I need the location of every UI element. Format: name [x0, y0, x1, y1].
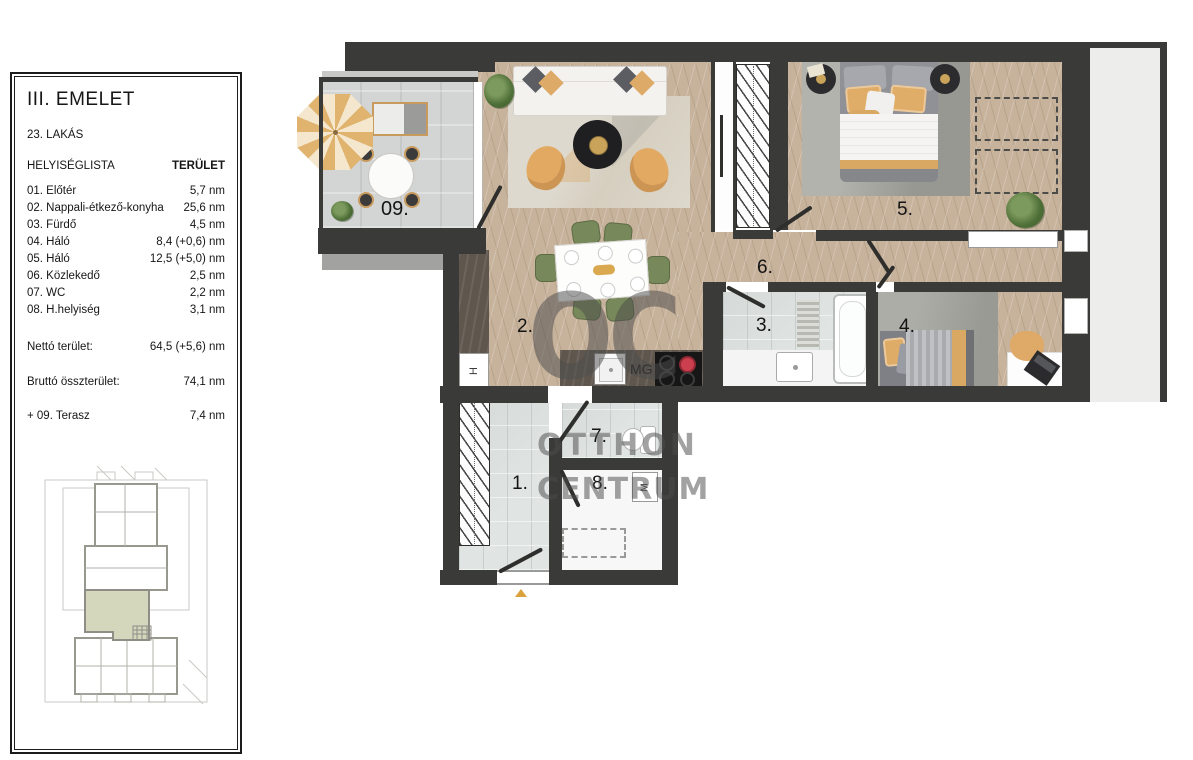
neighbor-terrace-strip — [1090, 48, 1162, 402]
room-row: 05. Háló12,5 (+5,0) nm — [27, 251, 225, 268]
plate — [564, 250, 580, 266]
bathroom-sink — [776, 352, 813, 382]
room-label: 05. Háló — [27, 251, 70, 268]
terrace-area-value: 7,4 nm — [190, 410, 225, 422]
terrace-rail-left — [319, 77, 323, 229]
window-right-2 — [1064, 298, 1088, 334]
site-plan-minimap — [27, 460, 225, 715]
wall-closet-column-left — [711, 62, 715, 232]
lounger-cushion — [404, 104, 426, 134]
watermark-line2: CENTRUM — [537, 472, 709, 507]
entrance-door-opening — [497, 570, 549, 585]
room-label: 06. Közlekedő — [27, 268, 100, 285]
info-panel-inner: III. EMELET 23. LAKÁS HELYISÉGLISTA TERÜ… — [14, 76, 238, 750]
room-area: 2,5 nm — [190, 268, 225, 285]
wall-bath-bedroom4 — [866, 282, 878, 402]
list-header-row: HELYISÉGLISTA TERÜLET — [27, 160, 225, 172]
wall-below-terrace — [318, 228, 486, 254]
room-label-5: 5. — [897, 199, 913, 221]
entry-wardrobe-centerline — [474, 402, 475, 544]
gross-area-value: 74,1 nm — [183, 376, 225, 388]
room-label: 01. Előtér — [27, 183, 76, 200]
room-area: 3,1 nm — [190, 302, 225, 319]
window-right-1 — [1064, 230, 1088, 252]
gross-area-row: Bruttó összterület: 74,1 nm — [27, 376, 225, 388]
wall-south — [678, 386, 1090, 402]
room-row: 08. H.helyiség3,1 nm — [27, 302, 225, 319]
room-label-1: 1. — [512, 473, 528, 495]
room-label-9: 09. — [381, 198, 409, 221]
neighbor-strip-top-line — [1090, 42, 1167, 48]
terrace-area-label: + 09. Terasz — [27, 410, 90, 422]
entrance-marker — [515, 589, 527, 597]
info-panel: III. EMELET 23. LAKÁS HELYISÉGLISTA TERÜ… — [10, 72, 242, 754]
room-label: 07. WC — [27, 285, 65, 302]
room-area: 5,7 nm — [190, 183, 225, 200]
fridge: H — [459, 353, 489, 389]
room-row: 02. Nappali-étkező-konyha25,6 nm — [27, 200, 225, 217]
apartment-number: 23. LAKÁS — [27, 129, 225, 141]
neighbor-strip-right-line — [1160, 42, 1167, 402]
bed4-foot — [966, 330, 974, 387]
room-label: 02. Nappali-étkező-konyha — [27, 200, 164, 217]
plate — [628, 248, 644, 264]
window-sill-bedroom5 — [968, 231, 1058, 248]
room-label: 08. H.helyiség — [27, 302, 100, 319]
room-label-6: 6. — [757, 257, 773, 279]
room-row: 01. Előtér5,7 nm — [27, 183, 225, 200]
nightstand — [806, 64, 836, 94]
bed5-foot — [840, 169, 938, 182]
bedroom5-plant — [1006, 192, 1044, 228]
room-row: 06. Közlekedő2,5 nm — [27, 268, 225, 285]
wall-shadow-band — [322, 254, 447, 270]
utility-dashed-outline — [562, 528, 626, 558]
net-area-row: Nettó terület: 64,5 (+5,6) nm — [27, 341, 225, 353]
terrace-plant — [331, 201, 353, 221]
bed4-duvet — [906, 330, 956, 387]
terrace-table — [368, 153, 414, 199]
nightstand — [930, 64, 960, 94]
room-label-4: 4. — [899, 316, 915, 338]
wall-bottom — [440, 570, 678, 585]
room-area: 8,4 (+0,6) nm — [156, 234, 225, 251]
room-label-3: 3. — [756, 315, 772, 337]
coffee-table-tray — [589, 136, 608, 155]
bed5-duvet — [840, 114, 938, 162]
terrace-rail-top — [320, 77, 478, 82]
lamp — [940, 74, 950, 84]
terrace-chair — [358, 192, 374, 208]
bed5-blanket-stripe — [840, 160, 938, 169]
coffee-table — [573, 120, 622, 169]
wardrobe-centerline — [753, 66, 754, 226]
room-list: 01. Előtér5,7 nm 02. Nappali-étkező-kony… — [27, 183, 225, 319]
wall-closet-column-right — [733, 62, 736, 232]
room-row: 07. WC2,2 nm — [27, 285, 225, 302]
room-area: 2,2 nm — [190, 285, 225, 302]
floor-title: III. EMELET — [27, 89, 225, 111]
watermark-line1: OTTHON — [537, 428, 698, 463]
sun-lounger — [372, 102, 428, 136]
room-row: 04. Háló8,4 (+0,6) nm — [27, 234, 225, 251]
bed4-blanket-stripe — [952, 330, 966, 387]
watermark-logo: OC — [528, 290, 677, 384]
net-area-value: 64,5 (+5,6) nm — [150, 341, 225, 353]
gross-area-label: Bruttó összterület: — [27, 376, 120, 388]
net-area-label: Nettó terület: — [27, 341, 93, 353]
floorplan-page: III. EMELET 23. LAKÁS HELYISÉGLISTA TERÜ… — [0, 0, 1193, 760]
terrace-sliding-door — [473, 82, 483, 228]
wall-closet-bedroom5 — [770, 62, 788, 230]
room-label: 03. Fürdő — [27, 217, 76, 234]
umbrella-pole — [333, 130, 338, 135]
terrace-area-row: + 09. Terasz 7,4 nm — [27, 410, 225, 422]
bathtub-basin — [839, 301, 866, 377]
burner-active — [679, 356, 696, 373]
room-row: 03. Fürdő4,5 nm — [27, 217, 225, 234]
site-plan-svg — [37, 460, 215, 710]
area-header: TERÜLET — [172, 160, 225, 172]
room-area: 12,5 (+5,0) nm — [150, 251, 225, 268]
wall-left — [443, 228, 459, 585]
closet-door-leaf — [720, 115, 723, 177]
wall-top-terrace — [345, 42, 495, 72]
room-label: 04. Háló — [27, 234, 70, 251]
closet-door-column — [715, 62, 733, 230]
kitchen-counter-left — [459, 250, 489, 353]
room-list-header: HELYISÉGLISTA — [27, 160, 115, 172]
plate — [597, 245, 613, 261]
bedroom5-wardrobe-dashed — [975, 97, 1058, 141]
bedroom5-wardrobe-dashed — [975, 149, 1058, 194]
wall-right — [1062, 42, 1090, 402]
room-area: 4,5 nm — [190, 217, 225, 234]
wall-bathroom-left — [703, 282, 723, 402]
bath-mat — [797, 300, 819, 347]
burner — [680, 372, 695, 387]
living-room-plant — [484, 74, 514, 108]
fridge-label: H — [468, 367, 480, 375]
faucet — [793, 365, 798, 370]
room-area: 25,6 nm — [183, 200, 225, 217]
wall-closet-bottom — [733, 230, 773, 239]
